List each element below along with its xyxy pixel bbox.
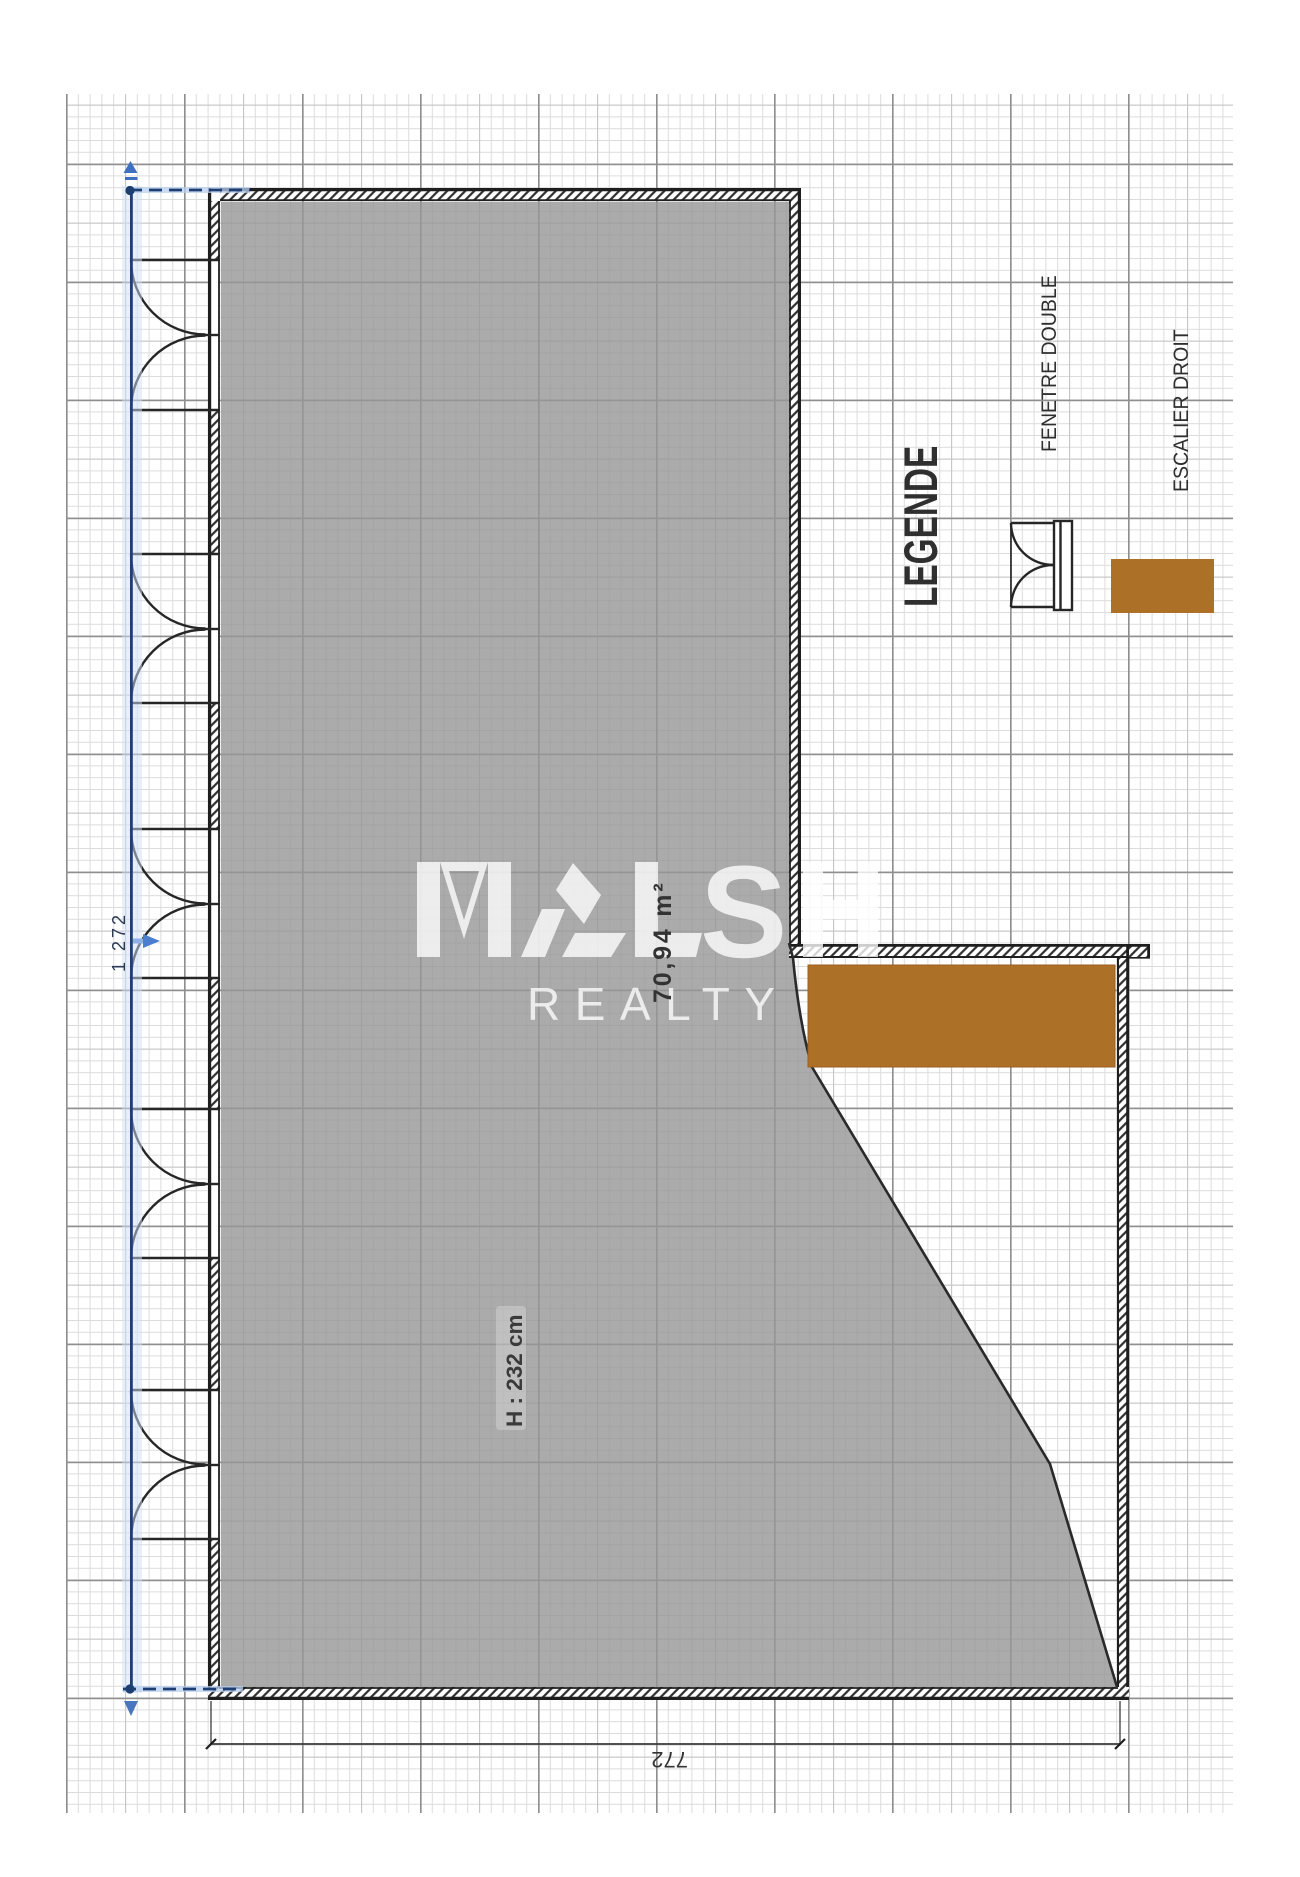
svg-text:FENETRE DOUBLE: FENETRE DOUBLE	[1038, 275, 1061, 452]
svg-text:1 272: 1 272	[109, 912, 129, 972]
svg-text:772: 772	[651, 1747, 688, 1772]
svg-text:ESCALIER DROIT: ESCALIER DROIT	[1170, 329, 1193, 492]
svg-text:S: S	[700, 838, 787, 985]
svg-text:LEGENDE: LEGENDE	[894, 446, 947, 607]
svg-text:H : 232 cm: H : 232 cm	[502, 1314, 527, 1427]
svg-text:70,94 m²: 70,94 m²	[649, 881, 677, 1003]
